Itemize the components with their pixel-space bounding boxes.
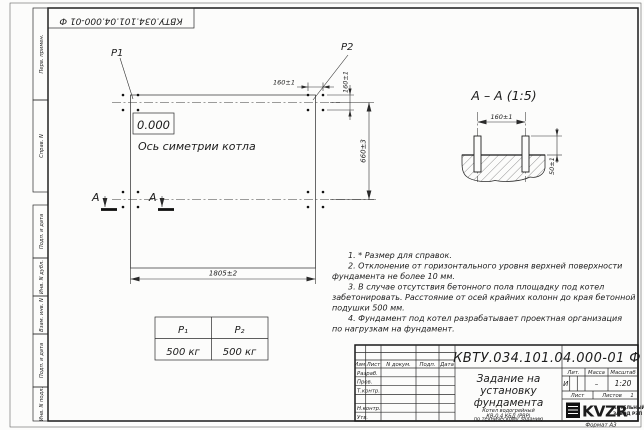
margin-stamps: Перв. примен. Справ. N Подп. и дата Инв.…: [33, 8, 48, 421]
plan-view: P1 P2 0.000 Ось симетрии котла 1805±2 66…: [91, 42, 376, 284]
section-letter: А: [148, 191, 157, 204]
load-table-value-p1: 500 кг: [166, 347, 200, 358]
notes-block: 1. * Размер для справок. 2. Отклонение о…: [332, 251, 635, 334]
anchor-bolt-section: [474, 136, 481, 172]
dim-height-value: 660±3: [360, 139, 368, 163]
sheets-label: Листов: [601, 393, 622, 399]
scale-value: 1:20: [615, 379, 632, 388]
note-line: 3. В случае отсутствия бетонного пола пл…: [348, 283, 604, 292]
drawing-canvas: КВТУ.034.101.04.000-01 Ф Перв. примен. С…: [0, 0, 644, 430]
dim-bolt-x-value: 160±1: [273, 79, 295, 87]
dim-protrusion-value: 50±1: [548, 157, 556, 175]
row-label-prov: Пров.: [357, 380, 372, 386]
drawing-title-line: Задание на: [477, 373, 541, 385]
section-mark-left: А: [91, 191, 117, 210]
note-line: подушки 500 мм.: [332, 304, 405, 313]
scale-header: Масштаб: [610, 370, 636, 376]
section-view: А – А (1:5) 160±1 50±1: [462, 88, 562, 182]
load-table-header-p1: Р₁: [178, 325, 188, 336]
mass-header: Масса: [588, 370, 605, 376]
sheets-value: 1: [630, 393, 633, 399]
load-table-header-p2: Р₂: [234, 325, 244, 336]
row-label-razrab: Разраб.: [357, 371, 378, 377]
note-line: по нагрузкам на фундамент.: [332, 325, 455, 334]
load-table: Р₁ Р₂ 500 кг 500 кг: [155, 317, 268, 360]
drawing-sheet: КВТУ.034.101.04.000-01 Ф Перв. примен. С…: [0, 0, 644, 430]
note-line: фундамента не более 10 мм.: [332, 272, 455, 281]
title-block: Изм. Лист N докум. Подп. Дата Разраб. Пр…: [354, 345, 644, 429]
col-header-podp: Подп.: [419, 362, 435, 368]
note-line: забетонировать. Расстояние от осей крайн…: [332, 293, 635, 302]
format-label: Формат А3: [585, 423, 617, 429]
dim-bolt-y-value: 160±1: [342, 71, 350, 93]
row-label-utv: Утв.: [357, 415, 368, 421]
note-line: 4. Фундамент под котел разрабатывает про…: [348, 314, 622, 323]
lit-header: Лит.: [566, 370, 579, 376]
margin-label-vzam-inv: Взам. инв. N: [39, 298, 45, 332]
sheet-label: Лист: [570, 393, 585, 399]
note-line: 2. Отклонение от горизонтального уровня …: [348, 262, 622, 271]
margin-label-podp-data-1: Подп. и дата: [39, 214, 45, 249]
margin-label-perv-primen: Перв. примен.: [39, 35, 45, 74]
col-header-izm: Изм.: [354, 362, 366, 368]
anchor-bolt-section: [522, 136, 529, 172]
company-logo: KVZR КОТЕЛЬНЫЙ ЗАВОД РЭП: [566, 403, 644, 421]
load-table-value-p2: 500 кг: [223, 347, 257, 358]
dim-width-value: 1805±2: [209, 270, 238, 278]
title-block-doc-number: КВТУ.034.101.04.000-01 Ф: [453, 351, 641, 366]
p2-label: P2: [341, 42, 353, 53]
note-line: 1. * Размер для справок.: [348, 251, 452, 260]
section-mark-right: А: [148, 191, 174, 210]
elevation-value: 0.000: [137, 118, 170, 132]
logo-caption-line: ЗАВОД РЭП: [613, 411, 642, 417]
margin-label-inv-dubl: Инв. N дубл.: [39, 260, 45, 294]
margin-label-inv-podl: Инв. N подл.: [39, 387, 45, 421]
margin-label-sprav-n: Справ. N: [39, 134, 45, 158]
mass-value: –: [595, 380, 599, 388]
lit-value: И: [563, 380, 569, 388]
col-header-data: Дата: [439, 362, 454, 368]
drawing-title-line: установку: [479, 385, 537, 397]
p1-leader-line: [120, 58, 133, 99]
section-letter: А: [91, 191, 100, 204]
dim-bolt-spacing-value: 160±1: [491, 113, 513, 121]
section-title: А – А (1:5): [470, 88, 536, 103]
corner-stamp-doc-number: КВТУ.034.101.04.000-01 Ф: [59, 16, 183, 26]
margin-label-podp-data-2: Подп. и дата: [39, 343, 45, 378]
row-label-tkontr: Т.контр.: [357, 388, 380, 394]
col-header-dokum: N докум.: [386, 362, 411, 368]
boiler-axis-label: Ось симетрии котла: [138, 140, 256, 153]
col-header-list: Лист: [366, 362, 381, 368]
drawing-subtitle-line: по техническому заданию: [474, 417, 544, 423]
p1-label: P1: [111, 48, 123, 59]
row-label-nkontr: Н.контр.: [357, 406, 381, 412]
